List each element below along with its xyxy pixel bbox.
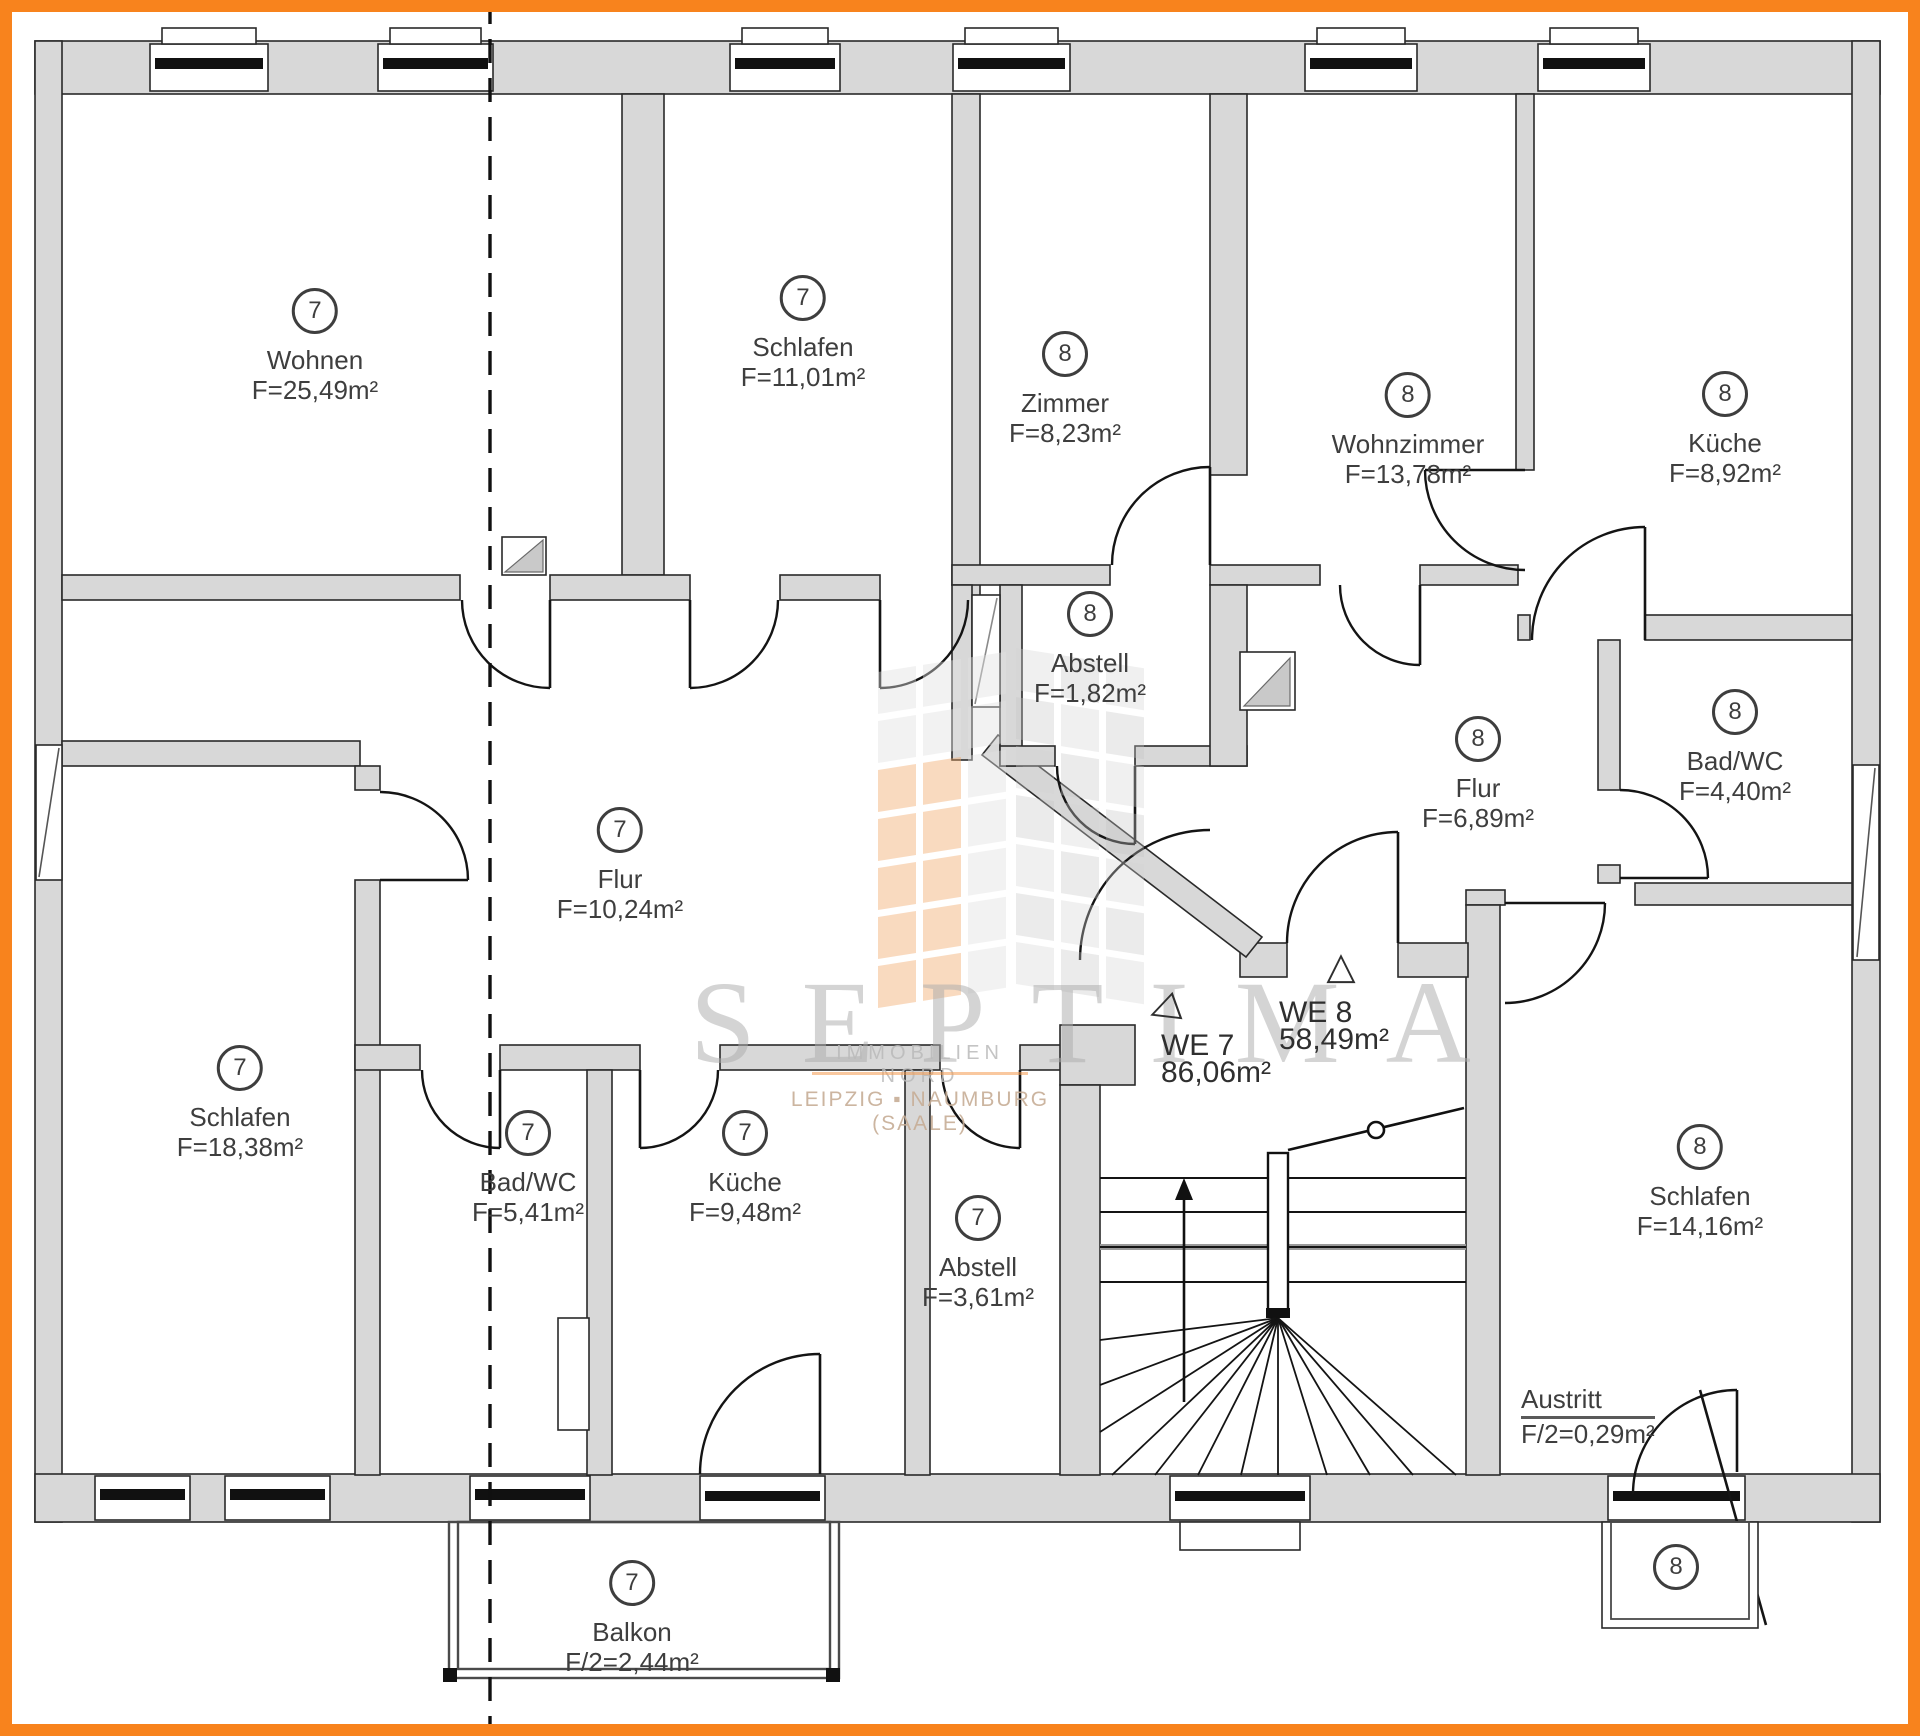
unit-area: 86,06m² (1161, 1059, 1271, 1086)
room-area: F=5,41m² (472, 1197, 584, 1227)
austritt-name: Austritt (1521, 1384, 1655, 1419)
window-top-2 (378, 28, 493, 91)
room-label-k-che: 7KücheF=9,48m² (689, 1110, 801, 1227)
unit-number-badge: 7 (955, 1195, 1001, 1241)
room-name: Balkon (565, 1617, 699, 1647)
room-name: Wohnzimmer (1332, 429, 1485, 459)
unit-number-badge: 7 (609, 1560, 655, 1606)
austritt-label: Austritt F/2=0,29m² (1521, 1384, 1655, 1450)
room-label-wohnzimmer: 8WohnzimmerF=13,78m² (1332, 372, 1485, 489)
unit-number-badge: 8 (1385, 372, 1431, 418)
unit-number-badge: 7 (505, 1110, 551, 1156)
room-label-bad-wc: 8Bad/WCF=4,40m² (1679, 689, 1791, 806)
room-area: F=6,89m² (1422, 803, 1534, 833)
window-left (36, 745, 62, 880)
unit-number-badge: 8 (1042, 331, 1088, 377)
room-label-flur: 7FlurF=10,24m² (557, 807, 683, 924)
room-name: Abstell (1034, 648, 1146, 678)
austritt-unit-badge: 8 (1653, 1544, 1699, 1590)
window-top-4 (953, 28, 1070, 91)
balcony-door-opening (700, 1476, 825, 1520)
floor-plan-canvas: SEPTIMA IMMOBILIEN NORD LEIPZIG ▪ NAUMBU… (0, 0, 1920, 1736)
unit-number-badge: 8 (1067, 591, 1113, 637)
room-label-schlafen: 7SchlafenF=11,01m² (741, 275, 866, 392)
room-area: F=14,16m² (1637, 1211, 1763, 1241)
unit-number-badge: 7 (597, 807, 643, 853)
window-bottom-1 (95, 1476, 190, 1520)
window-top-1 (150, 28, 268, 91)
room-label-balkon: 7BalkonF/2=2,44m² (565, 1560, 699, 1677)
unit-number-badge: 8 (1712, 689, 1758, 735)
room-name: Küche (689, 1167, 801, 1197)
room-label-abstell: 8AbstellF=1,82m² (1034, 591, 1146, 708)
room-name: Schlafen (741, 332, 866, 362)
room-area: F=13,78m² (1332, 459, 1485, 489)
unit-number-badge: 8 (1677, 1124, 1723, 1170)
we8-triangle-up-icon: △ (1326, 944, 1355, 989)
room-name: Bad/WC (472, 1167, 584, 1197)
room-area: F=11,01m² (741, 362, 866, 392)
room-area: F=25,49m² (252, 375, 378, 405)
room-name: Wohnen (252, 345, 378, 375)
unit-number-badge: 7 (217, 1045, 263, 1091)
stair-entry-step (1180, 1522, 1300, 1550)
unit-id: WE 8 (1279, 999, 1389, 1026)
unit-number-badge: 7 (722, 1110, 768, 1156)
we7-label: WE 786,06m² (1161, 1032, 1271, 1086)
floor-plan-drawing (0, 0, 1920, 1736)
room-label-k-che: 8KücheF=8,92m² (1669, 371, 1781, 488)
room-area: F=3,61m² (922, 1282, 1034, 1312)
stair-door-opening (1170, 1476, 1310, 1520)
room-area: F=10,24m² (557, 894, 683, 924)
unit-number-badge: 7 (780, 275, 826, 321)
room-area: F=1,82m² (1034, 678, 1146, 708)
austritt-door-opening (1608, 1476, 1745, 1520)
room-name: Bad/WC (1679, 746, 1791, 776)
unit-number-badge: 7 (292, 288, 338, 334)
window-bottom-2 (225, 1476, 330, 1520)
room-name: Schlafen (177, 1102, 303, 1132)
room-area: F=18,38m² (177, 1132, 303, 1162)
room-area: F=8,23m² (1009, 418, 1121, 448)
room-label-zimmer: 8ZimmerF=8,23m² (1009, 331, 1121, 448)
unit-id: WE 7 (1161, 1032, 1271, 1059)
austritt-area: F/2=0,29m² (1521, 1419, 1655, 1450)
room-area: F=9,48m² (689, 1197, 801, 1227)
room-area: F=4,40m² (1679, 776, 1791, 806)
window-top-3 (730, 28, 840, 91)
unit-number-badge: 8 (1455, 716, 1501, 762)
room-label-bad-wc: 7Bad/WCF=5,41m² (472, 1110, 584, 1227)
room-label-schlafen: 8SchlafenF=14,16m² (1637, 1124, 1763, 1241)
room-name: Zimmer (1009, 388, 1121, 418)
unit-area: 58,49m² (1279, 1026, 1389, 1053)
room-area: F/2=2,44m² (565, 1647, 699, 1677)
room-name: Abstell (922, 1252, 1034, 1282)
window-top-5 (1305, 28, 1417, 91)
window-bottom-3 (470, 1476, 590, 1520)
we8-label: WE 858,49m² (1279, 999, 1389, 1053)
room-label-schlafen: 7SchlafenF=18,38m² (177, 1045, 303, 1162)
room-name: Schlafen (1637, 1181, 1763, 1211)
room-label-flur: 8FlurF=6,89m² (1422, 716, 1534, 833)
room-name: Küche (1669, 428, 1781, 458)
window-top-6 (1538, 28, 1650, 91)
watermark-logo (878, 652, 1006, 1008)
room-label-abstell: 7AbstellF=3,61m² (922, 1195, 1034, 1312)
unit-number-badge: 8 (1702, 371, 1748, 417)
room-area: F=8,92m² (1669, 458, 1781, 488)
room-name: Flur (557, 864, 683, 894)
window-right (1853, 765, 1879, 960)
room-name: Flur (1422, 773, 1534, 803)
room-label-wohnen: 7WohnenF=25,49m² (252, 288, 378, 405)
